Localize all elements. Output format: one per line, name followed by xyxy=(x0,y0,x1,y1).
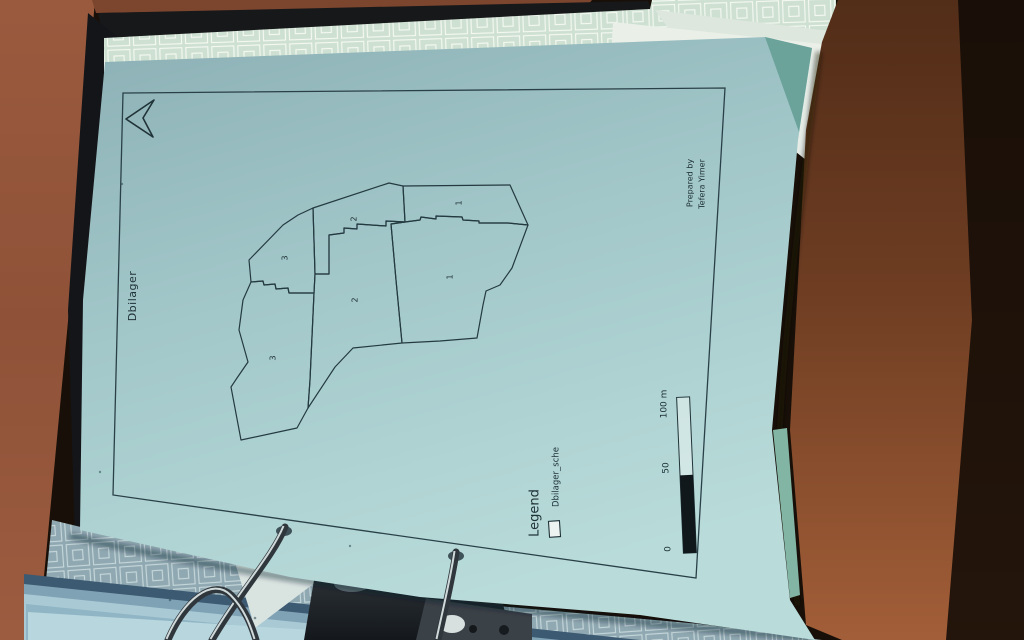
map-sheet-paper xyxy=(80,37,815,640)
scale-label-hundred: 100 m xyxy=(660,390,670,419)
parcel-label: 2 xyxy=(351,297,360,302)
map-title: Dbilager xyxy=(126,271,139,322)
speck xyxy=(99,471,101,473)
parcel-label: 1 xyxy=(446,274,455,279)
parcel-label: 2 xyxy=(350,216,359,221)
map-sheet: Dbilager 2 1 3 2 1 3 Legend Dbilager_sch… xyxy=(80,37,815,640)
legend-item-label: Dbilager_sche xyxy=(552,447,562,507)
speck xyxy=(349,545,351,547)
clamp-screw-hole xyxy=(499,625,509,635)
scale-label-zero: 0 xyxy=(664,546,674,552)
parcel-label: 1 xyxy=(455,200,464,205)
speck xyxy=(169,599,172,602)
clamp-screw-hole xyxy=(469,625,477,633)
credit-line-1: Prepared by xyxy=(686,159,695,207)
photo-scene: Dbilager 2 1 3 2 1 3 Legend Dbilager_sch… xyxy=(0,0,1024,640)
polygon-outline-swatch xyxy=(548,521,560,538)
parcel-label: 3 xyxy=(281,255,290,260)
scale-label-fifty: 50 xyxy=(662,462,672,474)
speck xyxy=(121,183,123,185)
legend-heading: Legend xyxy=(528,489,543,537)
credit-line-2: Tefera Yimer xyxy=(698,158,707,209)
speck xyxy=(254,617,257,620)
photo-of-map-binder: Dbilager 2 1 3 2 1 3 Legend Dbilager_sch… xyxy=(0,0,1024,640)
parcel-label: 3 xyxy=(269,355,278,360)
